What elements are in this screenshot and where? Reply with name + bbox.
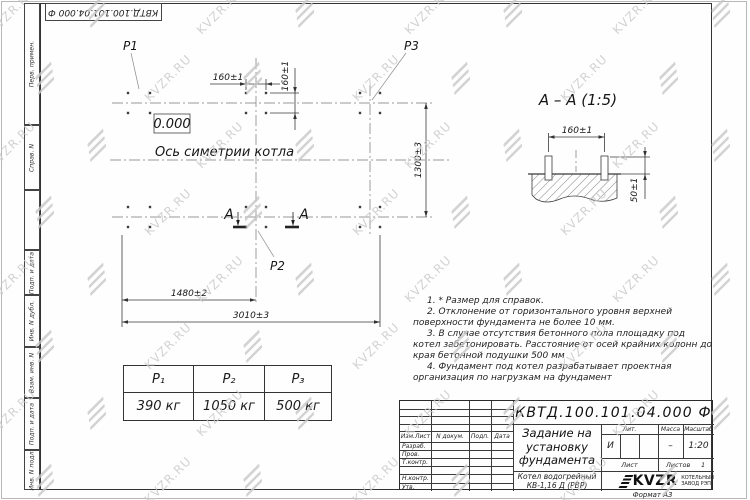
plan-view [110, 53, 452, 327]
company-name: KVZR [633, 473, 678, 489]
document-title: Задание на установку фундамента [519, 427, 595, 468]
rev-header-data: Дата [491, 431, 513, 442]
company-logo-cell: KVZR КОТЕЛЬНЫЙ ЗАВОД РЭП [601, 471, 714, 491]
dim-160-h: 160±1 [213, 73, 243, 83]
load-table: P₁ P₂ P₃ 390 кг 1050 кг 500 кг [123, 365, 332, 421]
dim-1300: 1300±3 [414, 142, 424, 178]
axis-of-symmetry-label: Ось симетрии котла [155, 145, 294, 160]
load-table-header-p1: P₁ [124, 366, 194, 393]
sig-row-nkontr: Н.контр. [402, 475, 429, 482]
sheet-label: Лист [601, 458, 658, 471]
dim-1480: 1480±2 [171, 289, 207, 299]
note-item: 3. В случае отсутствия бетонного пола пл… [413, 329, 712, 362]
elevation-value: 0.000 [153, 117, 190, 132]
lit-label: Лит. [601, 424, 658, 434]
load-table-header-p2: P₂ [194, 366, 265, 393]
section-dim-50: 50±1 [630, 178, 640, 203]
note-item: 4. Фундамент под котел разрабатывает про… [413, 362, 712, 384]
anchor-bolt-right [601, 156, 608, 180]
product-name-cell: Котел водогрейный КВ-1,16 Д (РВР) [513, 471, 601, 491]
dim-160-v: 160±1 [281, 61, 291, 91]
section-title: А – А (1:5) [538, 91, 617, 109]
section-dim-160: 160±1 [562, 126, 592, 136]
sheets-label: Листов [666, 461, 690, 469]
company-text: КОТЕЛЬНЫЙ ЗАВОД РЭП [681, 475, 714, 487]
notes-block: 1. * Размер для справок. 2. Отклонение о… [413, 296, 712, 384]
load-table-value-p3: 500 кг [265, 393, 331, 420]
scale-label: Масштаб [683, 424, 714, 434]
rev-header-izm-list: Изм.Лист [400, 431, 431, 442]
lit-value: И [601, 434, 620, 458]
rev-header-podp: Подп. [469, 431, 491, 442]
plan-label-p3: P3 [404, 39, 419, 53]
sig-row-prov: Пров. [402, 451, 419, 458]
note-item: 1. * Размер для справок. [413, 296, 712, 307]
mass-value: – [658, 434, 683, 458]
plan-label-p2: P2 [270, 259, 285, 273]
mass-label: Масса [658, 424, 683, 434]
format-label: Формат А3 [610, 491, 695, 499]
plan-label-p1: P1 [123, 39, 138, 53]
sheets-value: 1 [701, 461, 705, 469]
product-name: Котел водогрейный КВ-1,16 Д (РВР) [518, 472, 597, 490]
scale-value: 1:20 [683, 434, 714, 458]
title-block: Изм.Лист N докум. Подп. Дата Разраб. Про… [399, 400, 713, 490]
title-block-designation-cell: КВТД.100.101.04.000 Ф [513, 401, 714, 424]
rev-header-n-dokum: N докум. [431, 431, 469, 442]
dim-3010: 3010±3 [233, 311, 269, 321]
kvzr-logo-icon [619, 475, 633, 488]
drawing-sheet: Перв. примен. Справ. N Подп. и дата Инв.… [0, 0, 750, 500]
section-letter-right: А [298, 207, 309, 223]
section-letter-left: А [223, 207, 234, 223]
note-item: 2. Отклонение от горизонтального уровня … [413, 307, 712, 329]
anchor-bolt-left [545, 156, 552, 180]
load-table-value-p2: 1050 кг [194, 393, 265, 420]
load-table-value-p1: 390 кг [124, 393, 194, 420]
section-cut-marks [233, 212, 299, 227]
document-designation: КВТД.100.101.04.000 Ф [515, 405, 712, 421]
load-table-header-p3: P₃ [265, 366, 331, 393]
document-title-cell: Задание на установку фундамента [513, 424, 601, 471]
sig-row-utv: Утв. [402, 484, 415, 491]
sig-row-tkontr: Т.контр. [402, 459, 428, 466]
sig-row-razrab: Разраб. [402, 443, 426, 450]
